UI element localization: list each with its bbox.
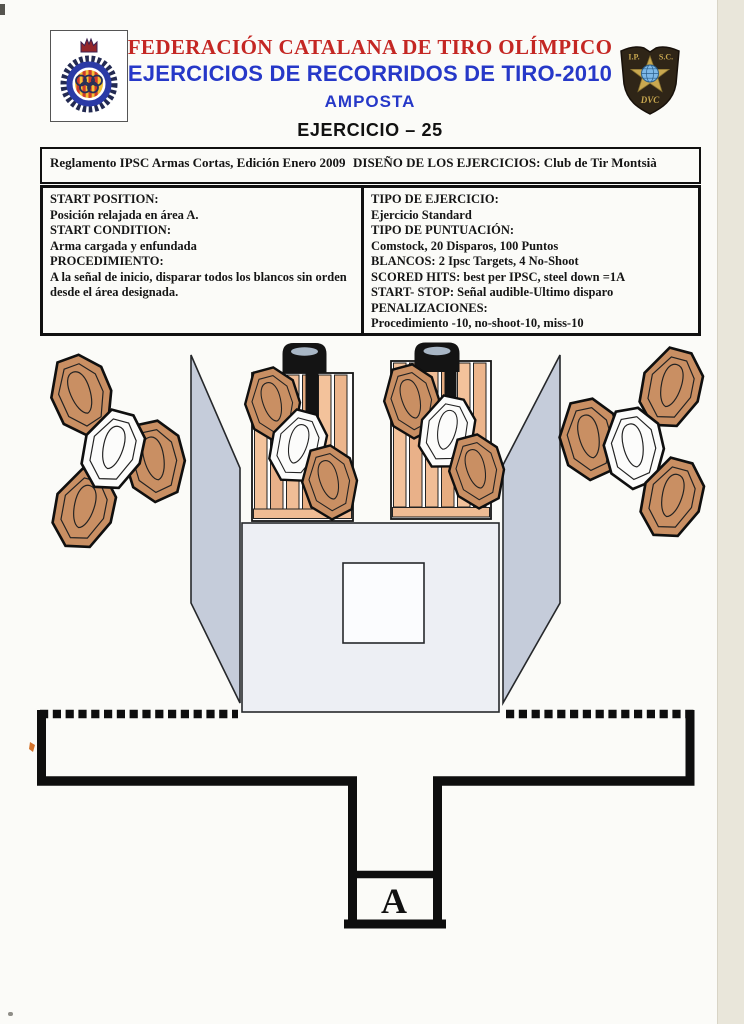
procedure-text: A la señal de inicio, disparar todos los… bbox=[50, 270, 353, 301]
start-stop-label: START- STOP: bbox=[371, 285, 454, 299]
city-title: AMPOSTA bbox=[70, 92, 670, 112]
design-text: DISEÑO DE LOS EJERCICIOS: Club de Tir Mo… bbox=[353, 155, 657, 171]
start-stop-text: Señal audible-Ultimo disparo bbox=[457, 285, 613, 299]
stage-diagram: A bbox=[0, 338, 744, 980]
start-position-text: Posición relajada en área A. bbox=[50, 208, 353, 224]
start-condition-text: Arma cargada y enfundada bbox=[50, 239, 353, 255]
right-wall bbox=[503, 355, 560, 703]
targets-label: BLANCOS: bbox=[371, 254, 436, 268]
wall-port-window bbox=[343, 563, 424, 643]
shooting-area-boundary bbox=[37, 710, 695, 928]
briefing-left-column: START POSITION: Posición relajada en áre… bbox=[43, 188, 361, 333]
start-stop-line: START- STOP: Señal audible-Ultimo dispar… bbox=[371, 285, 690, 301]
targets-text: 2 Ipsc Targets, 4 No-Shoot bbox=[439, 254, 579, 268]
scored-hits-text: best per IPSC, steel down =1A bbox=[463, 270, 625, 284]
briefing-right-column: TIPO DE EJERCICIO: Ejercicio Standard TI… bbox=[364, 188, 698, 333]
start-position-label: START POSITION: bbox=[50, 192, 353, 208]
exercise-type-text: Ejercicio Standard bbox=[371, 208, 690, 224]
federation-title: FEDERACIÓN CATALANA DE TIRO OLÍMPICO bbox=[70, 35, 670, 60]
right-target-cluster bbox=[553, 343, 710, 545]
scanned-course-sheet: I.P. S.C. DVC FEDERACIÓN CATALANA DE TIR… bbox=[0, 0, 744, 1024]
exercise-type-label: TIPO DE EJERCICIO: bbox=[371, 192, 690, 208]
scored-hits-label: SCORED HITS: bbox=[371, 270, 460, 284]
left-target-cluster bbox=[41, 348, 192, 555]
penalties-label: PENALIZACIONES: bbox=[371, 301, 690, 317]
start-area-label: A bbox=[381, 881, 407, 921]
series-title: EJERCICIOS DE RECORRIDOS DE TIRO-2010 bbox=[70, 61, 670, 87]
regulation-text: Reglamento IPSC Armas Cortas, Edición En… bbox=[50, 155, 346, 171]
scored-hits-line: SCORED HITS: best per IPSC, steel down =… bbox=[371, 270, 690, 286]
penalties-text: Procedimiento -10, no-shoot-10, miss-10 bbox=[371, 316, 690, 332]
scan-corner-mark bbox=[0, 4, 5, 15]
exercise-title: EJERCICIO – 25 bbox=[70, 120, 670, 141]
stage-briefing-box: START POSITION: Posición relajada en áre… bbox=[40, 185, 701, 336]
rules-bar: Reglamento IPSC Armas Cortas, Edición En… bbox=[40, 147, 701, 184]
targets-line: BLANCOS: 2 Ipsc Targets, 4 No-Shoot bbox=[371, 254, 690, 270]
scoring-type-label: TIPO DE PUNTUACIÓN: bbox=[371, 223, 690, 239]
left-wall bbox=[191, 355, 240, 703]
procedure-label: PROCEDIMIENTO: bbox=[50, 254, 353, 270]
scoring-type-text: Comstock, 20 Disparos, 100 Puntos bbox=[371, 239, 690, 255]
scan-speck bbox=[8, 1012, 13, 1016]
start-condition-label: START CONDITION: bbox=[50, 223, 353, 239]
scan-speck-orange bbox=[29, 742, 35, 752]
